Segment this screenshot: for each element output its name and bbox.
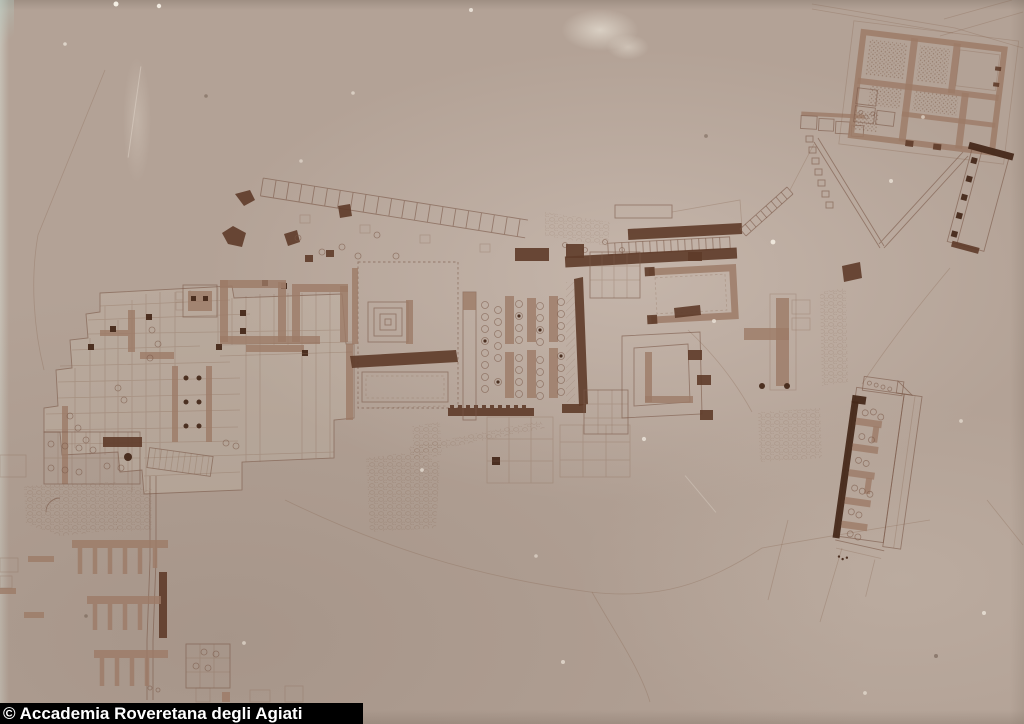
northeast-stoa [942,142,1014,256]
east-halls [408,252,713,483]
north-magazines [565,200,742,324]
dark-specks [0,0,2,2]
excavation-plan-drawing [0,0,1024,724]
l-shaped-annex [744,262,862,462]
west-wing [44,280,354,494]
photo-edge-artifact [0,0,14,52]
site-plan-photograph: © Accademia Roveretana degli Agiati [0,0,1024,724]
north-terraces [222,178,625,262]
northeast-building [839,21,1019,164]
watermark-caption-text: © Accademia Roveretana degli Agiati [3,704,302,723]
southeast-house [825,375,924,600]
watermark-caption: © Accademia Roveretana degli Agiati [0,703,363,724]
